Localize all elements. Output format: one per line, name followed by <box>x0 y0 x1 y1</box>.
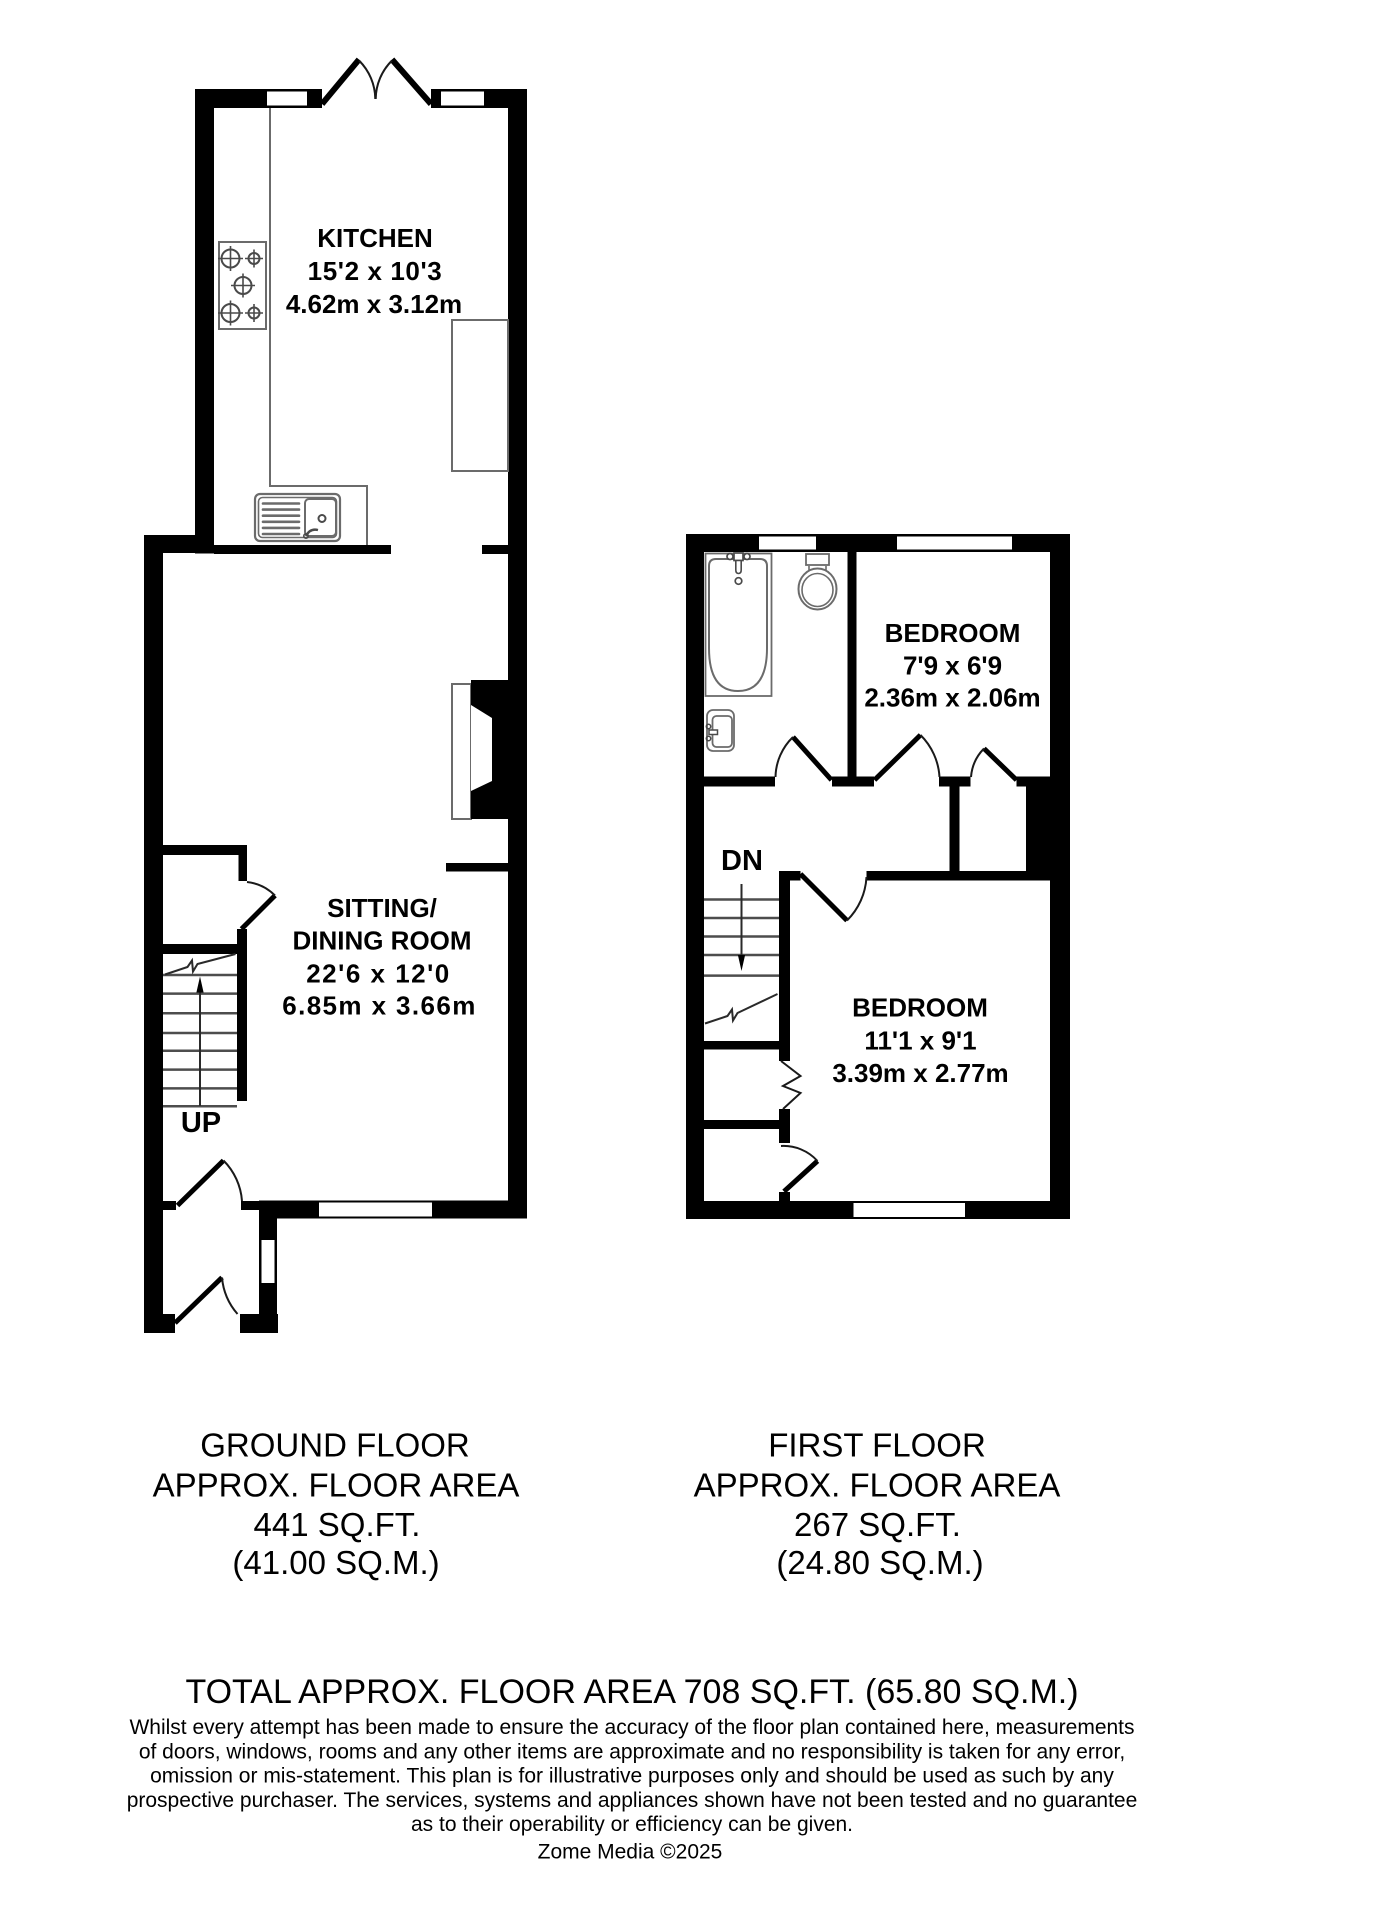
svg-text:(24.80 SQ.M.): (24.80 SQ.M.) <box>776 1544 983 1581</box>
svg-text:TOTAL APPROX. FLOOR AREA 708 S: TOTAL APPROX. FLOOR AREA 708 SQ.FT. (65.… <box>185 1673 1078 1711</box>
svg-text:Whilst every attempt has been: Whilst every attempt has been made to en… <box>129 1716 1134 1739</box>
svg-text:Zome Media ©2025: Zome Media ©2025 <box>538 1841 723 1864</box>
svg-text:DN: DN <box>721 845 763 877</box>
svg-text:11'1 x 9'1: 11'1 x 9'1 <box>864 1026 976 1056</box>
svg-text:15'2 x 10'3: 15'2 x 10'3 <box>308 256 443 286</box>
svg-text:SITTING/: SITTING/ <box>327 893 437 923</box>
svg-text:2.36m x 2.06m: 2.36m x 2.06m <box>864 682 1040 712</box>
svg-text:6.85m x 3.66m: 6.85m x 3.66m <box>282 990 477 1020</box>
svg-text:FIRST FLOOR: FIRST FLOOR <box>768 1427 986 1464</box>
svg-text:441 SQ.FT.: 441 SQ.FT. <box>254 1506 421 1543</box>
svg-text:7'9 x 6'9: 7'9 x 6'9 <box>903 651 1002 681</box>
svg-text:3.39m x 2.77m: 3.39m x 2.77m <box>832 1058 1008 1088</box>
svg-text:prospective purchaser. The ser: prospective purchaser. The services, sys… <box>127 1789 1138 1812</box>
svg-text:as to their operability or eff: as to their operability or efficiency ca… <box>411 1813 853 1836</box>
svg-text:DINING ROOM: DINING ROOM <box>292 926 471 956</box>
svg-text:267 SQ.FT.: 267 SQ.FT. <box>794 1506 961 1543</box>
svg-text:BEDROOM: BEDROOM <box>852 993 988 1023</box>
svg-text:4.62m x 3.12m: 4.62m x 3.12m <box>286 289 462 319</box>
svg-text:APPROX. FLOOR AREA: APPROX. FLOOR AREA <box>694 1466 1061 1503</box>
svg-text:KITCHEN: KITCHEN <box>317 223 433 253</box>
svg-text:BEDROOM: BEDROOM <box>885 618 1021 648</box>
svg-text:omission or mis-statement. Thi: omission or mis-statement. This plan is … <box>150 1765 1114 1788</box>
svg-text:of doors, windows, rooms and a: of doors, windows, rooms and any other i… <box>139 1740 1125 1763</box>
svg-text:UP: UP <box>181 1107 221 1139</box>
svg-text:22'6 x 12'0: 22'6 x 12'0 <box>306 958 451 988</box>
svg-text:(41.00 SQ.M.): (41.00 SQ.M.) <box>232 1544 439 1581</box>
svg-text:APPROX. FLOOR AREA: APPROX. FLOOR AREA <box>153 1466 520 1503</box>
svg-text:GROUND FLOOR: GROUND FLOOR <box>200 1427 470 1464</box>
